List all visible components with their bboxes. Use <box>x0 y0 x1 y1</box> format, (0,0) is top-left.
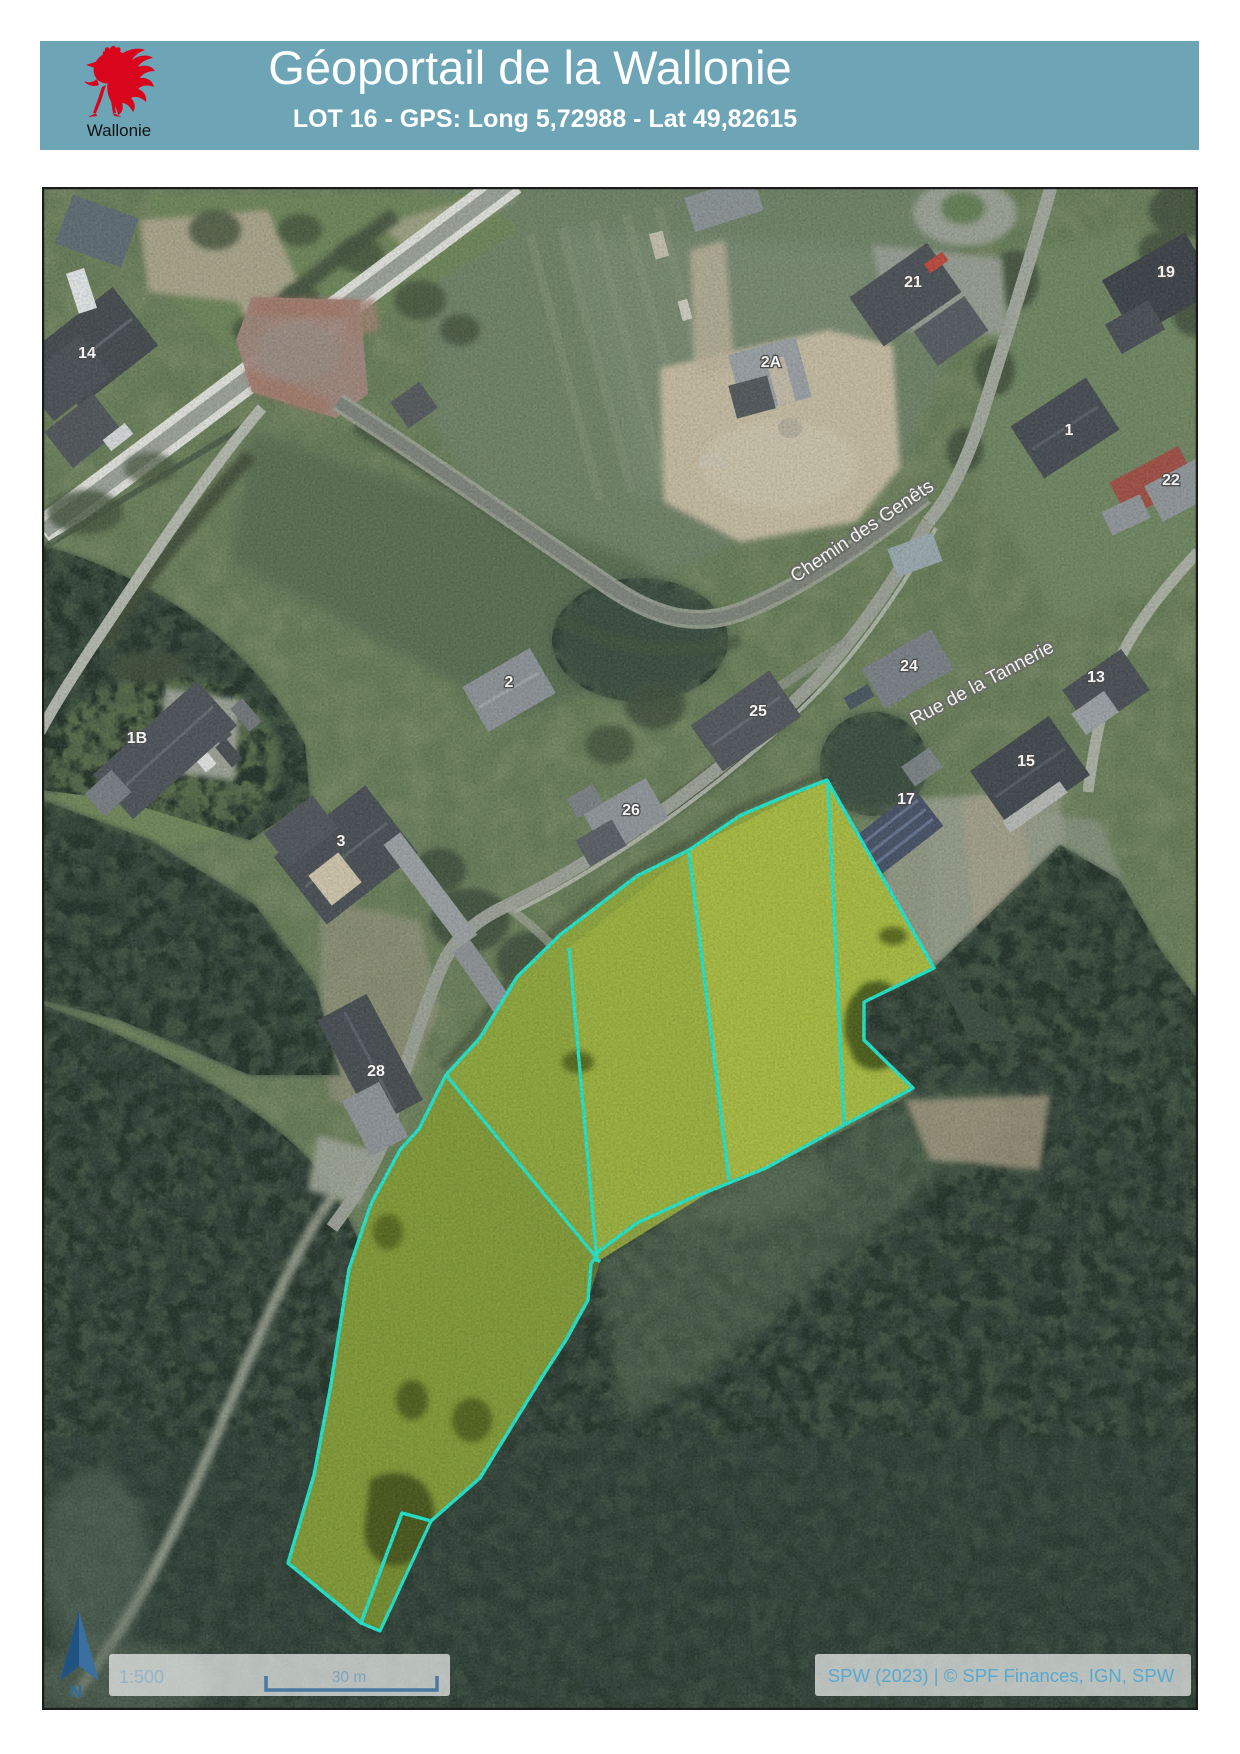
svg-text:1:500: 1:500 <box>119 1667 164 1687</box>
svg-text:SPW (2023) | © SPF Finances, I: SPW (2023) | © SPF Finances, IGN, SPW <box>828 1665 1175 1686</box>
svg-text:30 m: 30 m <box>332 1669 366 1686</box>
svg-text:N: N <box>70 1682 82 1701</box>
